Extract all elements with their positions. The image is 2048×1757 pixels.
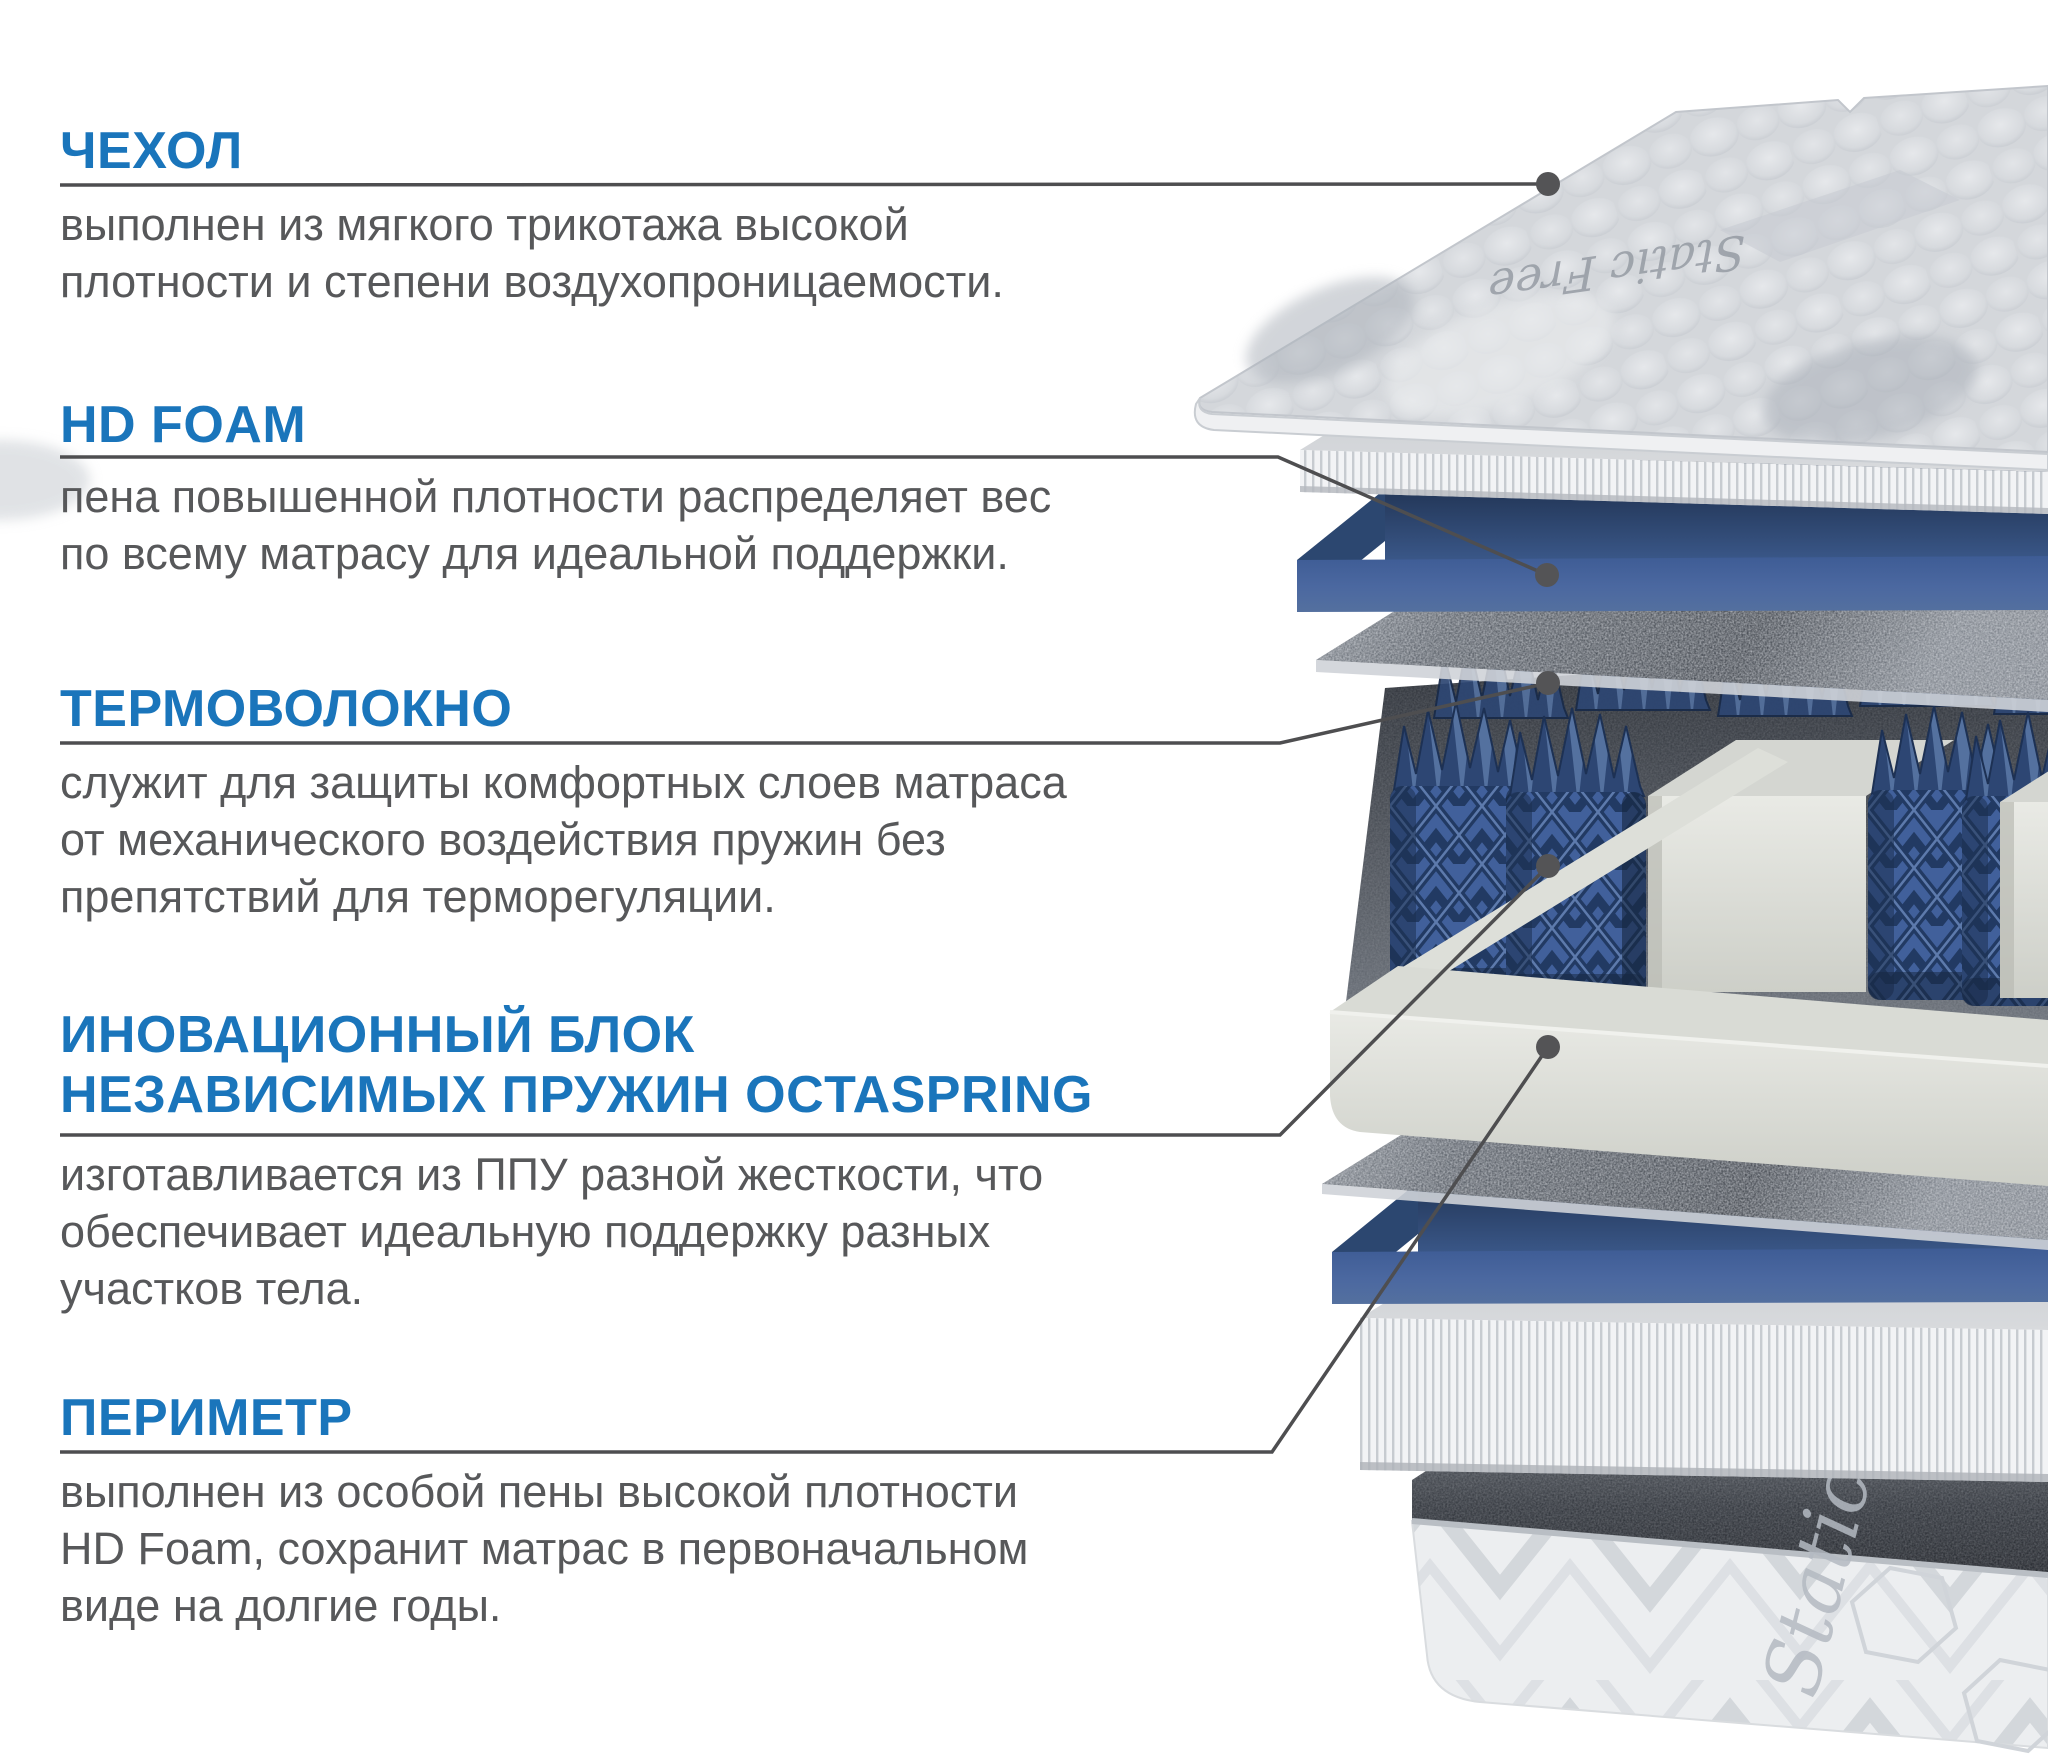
section-octaspring-body: изготавливается из ППУ разной жесткости,…	[60, 1146, 1043, 1317]
section-cover-body: выполнен из мягкого трикотажа высокой пл…	[60, 196, 1004, 310]
section-thermo-fiber-body: служит для защиты комфортных слоев матра…	[60, 754, 1067, 925]
callout-dot-cover	[1536, 172, 1560, 196]
section-cover-title: ЧЕХОЛ	[60, 121, 243, 181]
section-thermo-fiber-title: ТЕРМОВОЛОКНО	[60, 679, 512, 739]
callout-dot-thermo	[1536, 671, 1560, 695]
section-octaspring-title: ИНОВАЦИОННЫЙ БЛОК НЕЗАВИСИМЫХ ПРУЖИН OCT…	[60, 1005, 1093, 1125]
section-hd-foam-title: HD FOAM	[60, 395, 306, 455]
callout-dot-octaspring	[1536, 854, 1560, 878]
section-perimeter-body: выполнен из особой пены высокой плотност…	[60, 1463, 1029, 1634]
section-perimeter-title: ПЕРИМЕТР	[60, 1388, 353, 1448]
mattress-layers-infographic: Static Free	[0, 0, 2048, 1757]
callout-dot-perimeter	[1536, 1035, 1560, 1059]
section-hd-foam-body: пена повышенной плотности распределяет в…	[60, 468, 1051, 582]
callout-dot-hd-foam	[1535, 563, 1559, 587]
callout-line-cover	[60, 184, 1548, 185]
